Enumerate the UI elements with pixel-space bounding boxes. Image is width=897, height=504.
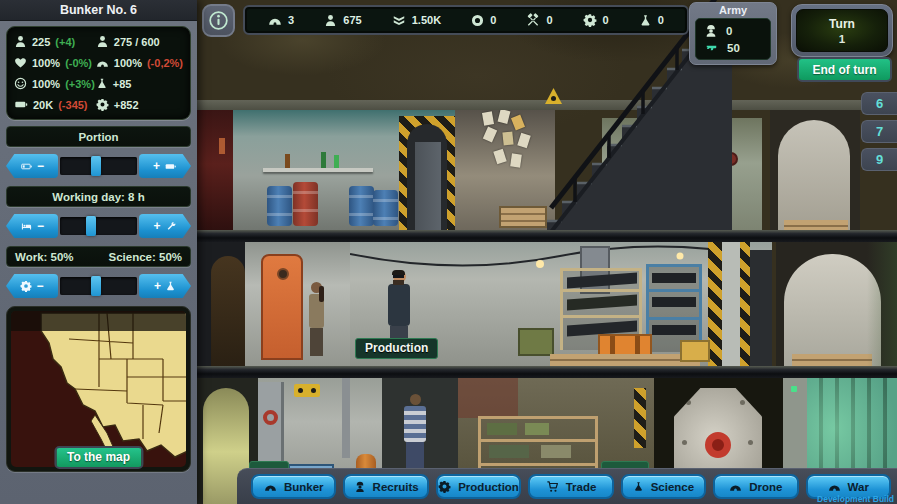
nav-production-button[interactable]: Production bbox=[436, 474, 521, 499]
room-quarters[interactable] bbox=[245, 242, 350, 366]
curtain bbox=[458, 378, 518, 418]
work-increase-button[interactable]: − bbox=[6, 274, 58, 298]
resource-population: 675 bbox=[324, 14, 361, 27]
development-build-watermark: Development Build bbox=[817, 494, 894, 504]
work-science-header: Work: 50% Science: 50% bbox=[6, 246, 191, 267]
room-red[interactable] bbox=[197, 110, 233, 230]
working-day-increase-button[interactable]: + bbox=[139, 214, 191, 238]
bunker-scene: Production bbox=[197, 0, 897, 504]
wall-notes[interactable] bbox=[455, 110, 555, 230]
pinned-paper bbox=[482, 111, 494, 126]
portion-slider-handle[interactable] bbox=[91, 156, 101, 176]
army-soldiers: 0 bbox=[704, 24, 762, 38]
resident-woman[interactable] bbox=[307, 282, 325, 362]
work-science-section: Work: 50% Science: 50% − + bbox=[6, 246, 191, 298]
pallet bbox=[784, 220, 848, 230]
stat-residents: 225(+4) bbox=[14, 35, 96, 48]
stat-science-rate: +85 bbox=[96, 77, 183, 90]
stat-capacity: 275 / 600 bbox=[96, 35, 183, 48]
room-partial-left[interactable] bbox=[197, 242, 245, 366]
portion-increase-button[interactable]: + bbox=[139, 154, 191, 178]
dark-doorway bbox=[750, 250, 772, 366]
bunker-title: Bunker No. 6 bbox=[0, 0, 197, 21]
resource-army-rank: 1.50K bbox=[392, 13, 441, 27]
resource-bar: 3 675 1.50K 0 0 0 0 bbox=[243, 5, 689, 35]
warning-sign bbox=[294, 384, 320, 397]
red-barrel bbox=[293, 182, 318, 226]
bottle bbox=[321, 152, 326, 168]
bottom-nav: Bunker Recruits Production Trade Science… bbox=[237, 468, 897, 504]
floor-1 bbox=[197, 110, 897, 230]
supply-crate bbox=[518, 328, 554, 356]
science-increase-button[interactable]: + bbox=[139, 274, 191, 298]
turn-panel: Turn 1 bbox=[791, 4, 893, 57]
work-science-slider[interactable] bbox=[60, 277, 137, 295]
yellow-crate bbox=[680, 340, 710, 362]
bottle bbox=[334, 155, 339, 168]
room-arch-tunnel[interactable] bbox=[770, 110, 860, 230]
room-label-production: Production bbox=[355, 338, 438, 359]
pinned-paper bbox=[511, 115, 525, 131]
turn-label: Turn bbox=[829, 17, 855, 31]
bottle bbox=[285, 154, 290, 168]
nav-science-button[interactable]: Science bbox=[621, 474, 706, 499]
pinned-paper bbox=[517, 133, 531, 148]
army-title: Army bbox=[690, 3, 776, 18]
bunker-stats-panel: 225(+4) 275 / 600 100%(-0%) 100%(-0,2%) … bbox=[6, 26, 191, 120]
stat-bunker-condition: 100%(-0,2%) bbox=[96, 56, 183, 69]
shelf bbox=[263, 168, 373, 172]
info-button[interactable] bbox=[202, 4, 235, 37]
blue-barrel bbox=[373, 190, 398, 226]
orange-door bbox=[261, 254, 303, 360]
pipe bbox=[342, 378, 350, 458]
turn-number: 1 bbox=[839, 33, 845, 45]
nav-recruits-button[interactable]: Recruits bbox=[343, 474, 428, 499]
pinned-paper bbox=[493, 149, 507, 164]
tunnel-interior bbox=[778, 120, 850, 230]
minimap[interactable] bbox=[11, 311, 186, 467]
end-of-turn-button[interactable]: End of turn bbox=[797, 57, 892, 82]
stat-happiness: 100%(+3%) bbox=[14, 77, 96, 90]
nav-bunker-button[interactable]: Bunker bbox=[251, 474, 336, 499]
stat-production-rate: +852 bbox=[96, 98, 183, 111]
window-light bbox=[219, 138, 225, 154]
to-the-map-button[interactable]: To the map bbox=[54, 446, 143, 469]
green-tint bbox=[867, 242, 897, 366]
floor-slab bbox=[197, 230, 897, 242]
working-day-header: Working day: 8 h bbox=[6, 186, 191, 207]
pallet bbox=[792, 354, 872, 366]
working-day-decrease-button[interactable]: − bbox=[6, 214, 58, 238]
pinned-paper bbox=[498, 110, 511, 124]
working-day-section: Working day: 8 h − + bbox=[6, 186, 191, 238]
resource-production: 0 bbox=[583, 13, 609, 27]
floor-2 bbox=[197, 242, 897, 366]
stat-health: 100%(-0%) bbox=[14, 56, 96, 69]
science-label: Science: 50% bbox=[108, 251, 182, 263]
resource-caps: 0 bbox=[471, 14, 496, 27]
working-day-slider-handle[interactable] bbox=[86, 216, 96, 236]
portion-decrease-button[interactable]: − bbox=[6, 154, 58, 178]
resource-science: 0 bbox=[639, 14, 664, 27]
floor-tabs: 6 7 9 bbox=[861, 92, 897, 171]
portion-header: Portion bbox=[6, 126, 191, 147]
hazard-doorway bbox=[399, 116, 455, 230]
pinned-paper bbox=[483, 127, 497, 143]
arch-glow bbox=[211, 256, 245, 366]
resource-bunkers: 3 bbox=[268, 13, 294, 27]
weapon-rack-blue bbox=[646, 264, 702, 352]
indicator-light bbox=[791, 386, 797, 392]
blue-barrel bbox=[267, 186, 292, 226]
blue-barrel bbox=[349, 186, 374, 226]
floor-tab-6[interactable]: 6 bbox=[861, 92, 897, 115]
game-screen: Production 3 675 1.50K 0 0 0 0 Army 0 50 bbox=[0, 0, 897, 504]
nav-drone-button[interactable]: Drone bbox=[713, 474, 798, 499]
portion-slider[interactable] bbox=[60, 157, 137, 175]
work-science-slider-handle[interactable] bbox=[91, 276, 101, 296]
vault-wheel bbox=[705, 432, 731, 458]
minimap-panel: To the map bbox=[6, 306, 191, 472]
army-weapons: 50 bbox=[704, 42, 762, 54]
wooden-crate bbox=[499, 206, 547, 228]
nav-trade-button[interactable]: Trade bbox=[528, 474, 613, 499]
room-empty-arch[interactable] bbox=[776, 242, 897, 366]
work-label: Work: 50% bbox=[15, 251, 74, 263]
hazard-strip bbox=[634, 388, 646, 448]
pinned-paper bbox=[502, 132, 513, 146]
pinned-paper bbox=[510, 153, 522, 167]
working-day-slider[interactable] bbox=[60, 217, 137, 235]
floor-slab bbox=[197, 366, 897, 378]
army-panel[interactable]: Army 0 50 bbox=[689, 2, 777, 65]
room-storage[interactable] bbox=[233, 110, 455, 230]
portion-section: Portion − + bbox=[6, 126, 191, 178]
stat-power: 20K(-345) bbox=[14, 98, 96, 111]
floor-pallets bbox=[550, 354, 700, 366]
resource-materials: 0 bbox=[526, 13, 552, 27]
hazard-pillar bbox=[708, 242, 750, 366]
floor-tab-9[interactable]: 9 bbox=[861, 148, 897, 171]
sidebar: Bunker No. 6 225(+4) 275 / 600 100%(-0%)… bbox=[0, 0, 197, 504]
floor-tab-7[interactable]: 7 bbox=[861, 120, 897, 143]
